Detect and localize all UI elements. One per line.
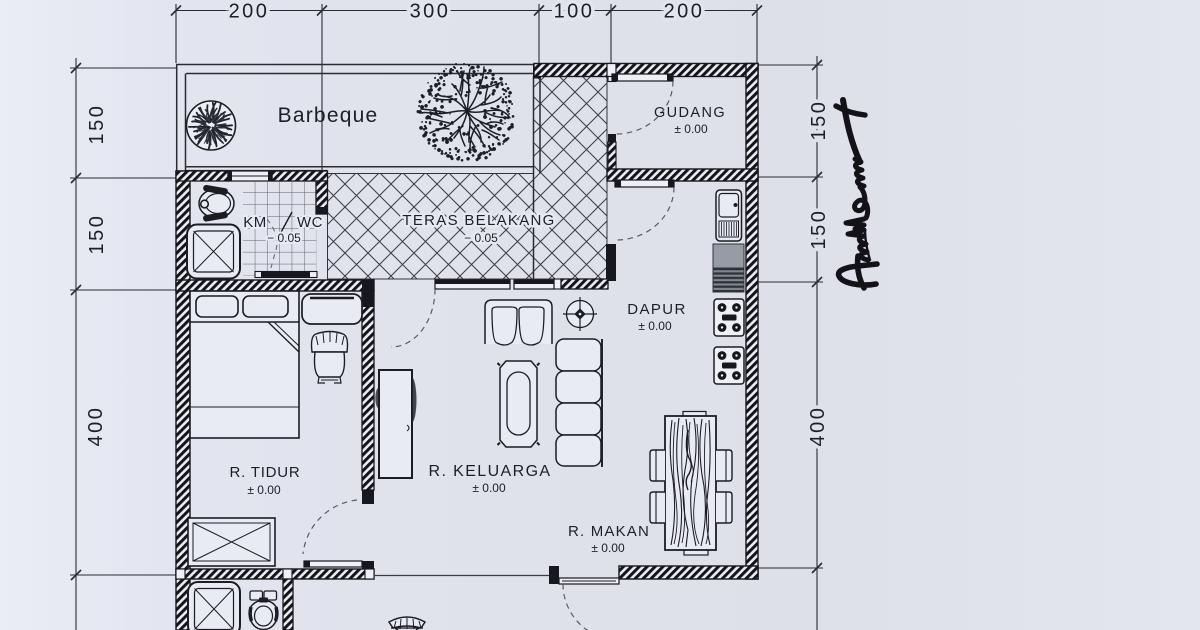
svg-text:R. TIDUR: R. TIDUR <box>229 464 300 481</box>
svg-text:150: 150 <box>808 209 830 250</box>
svg-text:150: 150 <box>808 100 830 141</box>
svg-text:− 0.05: − 0.05 <box>464 231 498 245</box>
svg-text:± 0.00: ± 0.00 <box>472 481 506 495</box>
svg-text:200: 200 <box>664 1 705 23</box>
svg-text:200: 200 <box>229 1 270 23</box>
svg-text:R. MAKAN: R. MAKAN <box>568 523 650 540</box>
svg-text:− 0.05: − 0.05 <box>267 231 301 245</box>
svg-text:150: 150 <box>86 104 108 145</box>
svg-text:150: 150 <box>86 214 108 255</box>
svg-text:DAPUR: DAPUR <box>627 301 687 318</box>
svg-text:400: 400 <box>807 406 829 447</box>
svg-text:± 0.00: ± 0.00 <box>674 122 708 136</box>
svg-text:± 0.00: ± 0.00 <box>247 483 281 497</box>
svg-text:± 0.00: ± 0.00 <box>638 319 672 333</box>
svg-text:KM: KM <box>243 214 267 231</box>
svg-text:300: 300 <box>410 1 451 23</box>
svg-text:R. KELUARGA: R. KELUARGA <box>429 463 552 480</box>
svg-text:± 0.00: ± 0.00 <box>591 541 625 555</box>
svg-text:Barbeque: Barbeque <box>278 104 379 127</box>
svg-text:100: 100 <box>554 1 595 23</box>
svg-text:WC: WC <box>297 214 323 231</box>
svg-text:GUDANG: GUDANG <box>654 105 726 121</box>
svg-text:TERAS BELAKANG: TERAS BELAKANG <box>402 212 555 229</box>
svg-text:400: 400 <box>85 406 107 447</box>
